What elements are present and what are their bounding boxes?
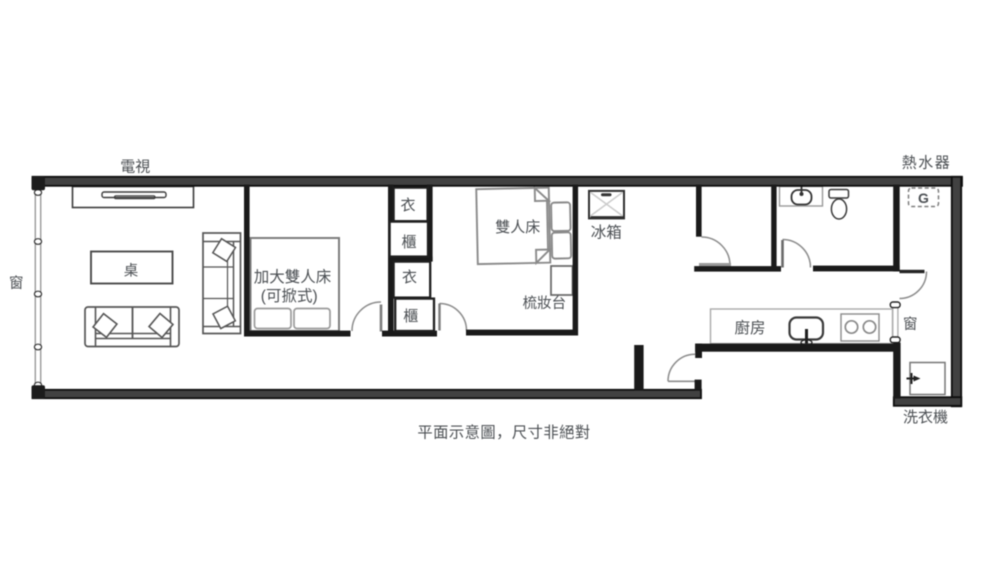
svg-text:平面示意圖，尺寸非絕對: 平面示意圖，尺寸非絕對 bbox=[417, 424, 590, 442]
svg-text:(可掀式): (可掀式) bbox=[261, 287, 318, 305]
svg-text:衣: 衣 bbox=[400, 197, 415, 214]
svg-text:衣: 衣 bbox=[402, 269, 417, 286]
svg-text:桌: 桌 bbox=[124, 262, 139, 279]
svg-text:廚房: 廚房 bbox=[734, 318, 765, 337]
svg-text:加大雙人床: 加大雙人床 bbox=[254, 268, 332, 286]
svg-text:窗: 窗 bbox=[9, 274, 24, 292]
svg-text:雙人床: 雙人床 bbox=[495, 219, 540, 236]
svg-text:洗衣機: 洗衣機 bbox=[903, 409, 948, 426]
svg-text:櫃: 櫃 bbox=[401, 234, 416, 251]
svg-text:電視: 電視 bbox=[120, 158, 150, 175]
svg-text:G: G bbox=[918, 190, 929, 206]
svg-text:窗: 窗 bbox=[903, 315, 918, 333]
svg-text:梳妝台: 梳妝台 bbox=[523, 295, 567, 312]
svg-text:熱水器: 熱水器 bbox=[902, 154, 952, 171]
svg-text:櫃: 櫃 bbox=[403, 308, 418, 325]
svg-text:冰箱: 冰箱 bbox=[591, 224, 622, 242]
